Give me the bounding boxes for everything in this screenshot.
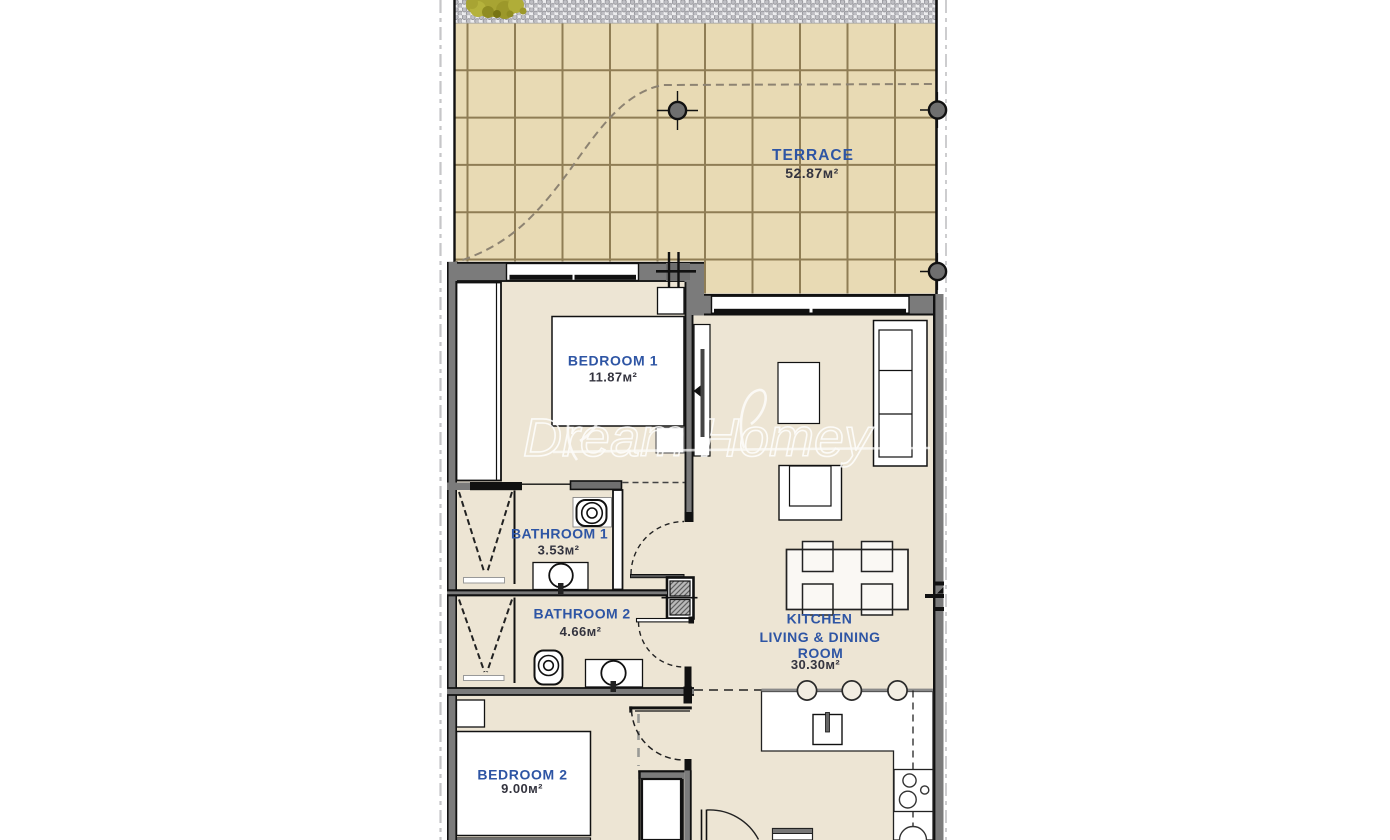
svg-text:11.87м²: 11.87м²	[589, 370, 638, 385]
svg-text:LIVING & DINING: LIVING & DINING	[759, 629, 880, 645]
svg-text:BEDROOM 1: BEDROOM 1	[568, 353, 658, 369]
svg-text:4.66м²: 4.66м²	[560, 624, 602, 639]
svg-text:BATHROOM 1: BATHROOM 1	[511, 526, 608, 542]
svg-text:3.53м²: 3.53м²	[538, 543, 580, 558]
svg-text:TERRACE: TERRACE	[772, 147, 854, 164]
svg-text:KITCHEN: KITCHEN	[787, 611, 853, 627]
svg-text:9.00м²: 9.00м²	[501, 781, 543, 796]
svg-text:30.30м²: 30.30м²	[791, 657, 841, 672]
svg-text:52.87м²: 52.87м²	[785, 165, 839, 181]
svg-text:BATHROOM 2: BATHROOM 2	[533, 606, 630, 622]
